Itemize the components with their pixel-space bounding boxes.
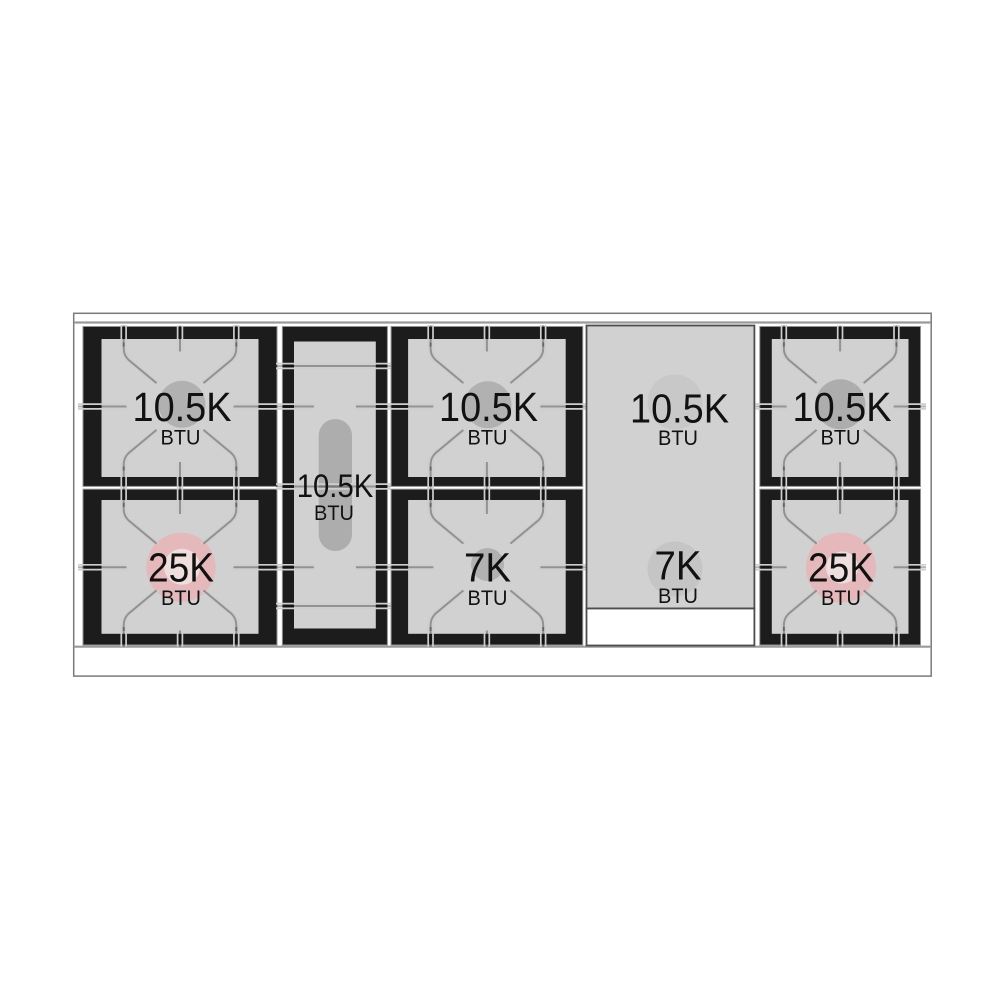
svg-text:BTU: BTU [314, 502, 354, 525]
svg-text:10.5K: 10.5K [793, 384, 892, 430]
svg-text:BTU: BTU [468, 587, 508, 610]
svg-text:7K: 7K [464, 544, 511, 590]
svg-text:BTU: BTU [161, 426, 201, 449]
svg-text:10.5K: 10.5K [133, 384, 232, 430]
svg-text:25K: 25K [808, 544, 874, 590]
svg-text:BTU: BTU [161, 587, 201, 610]
svg-text:BTU: BTU [821, 587, 861, 610]
svg-text:BTU: BTU [658, 585, 698, 608]
svg-text:BTU: BTU [821, 426, 861, 449]
svg-text:BTU: BTU [658, 427, 698, 450]
svg-text:10.5K: 10.5K [630, 385, 729, 431]
svg-text:25K: 25K [148, 544, 214, 590]
svg-text:BTU: BTU [468, 426, 508, 449]
svg-text:7K: 7K [655, 542, 702, 588]
svg-text:10.5K: 10.5K [297, 468, 374, 504]
svg-text:10.5K: 10.5K [439, 384, 538, 430]
